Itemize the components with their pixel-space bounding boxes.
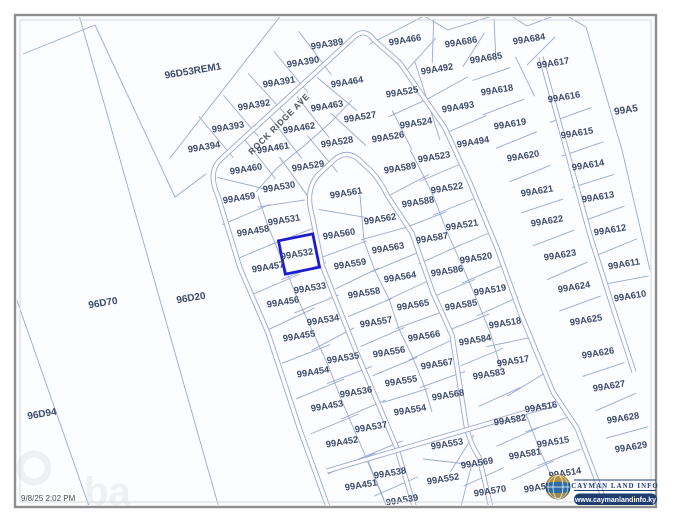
timestamp: 9/8/25 2:02 PM [21,494,76,503]
map-canvas[interactable]: ba 96D53REM196D7096D2096D9499A599A389 [0,0,675,529]
stamp-title: CAYMAN LAND INFO [571,483,659,490]
map-viewport[interactable]: ba 96D53REM196D7096D2096D9499A599A389 [0,0,675,529]
globe-icon [546,474,570,499]
stamp-url: www.caymanlandinfo.ky [574,497,656,504]
